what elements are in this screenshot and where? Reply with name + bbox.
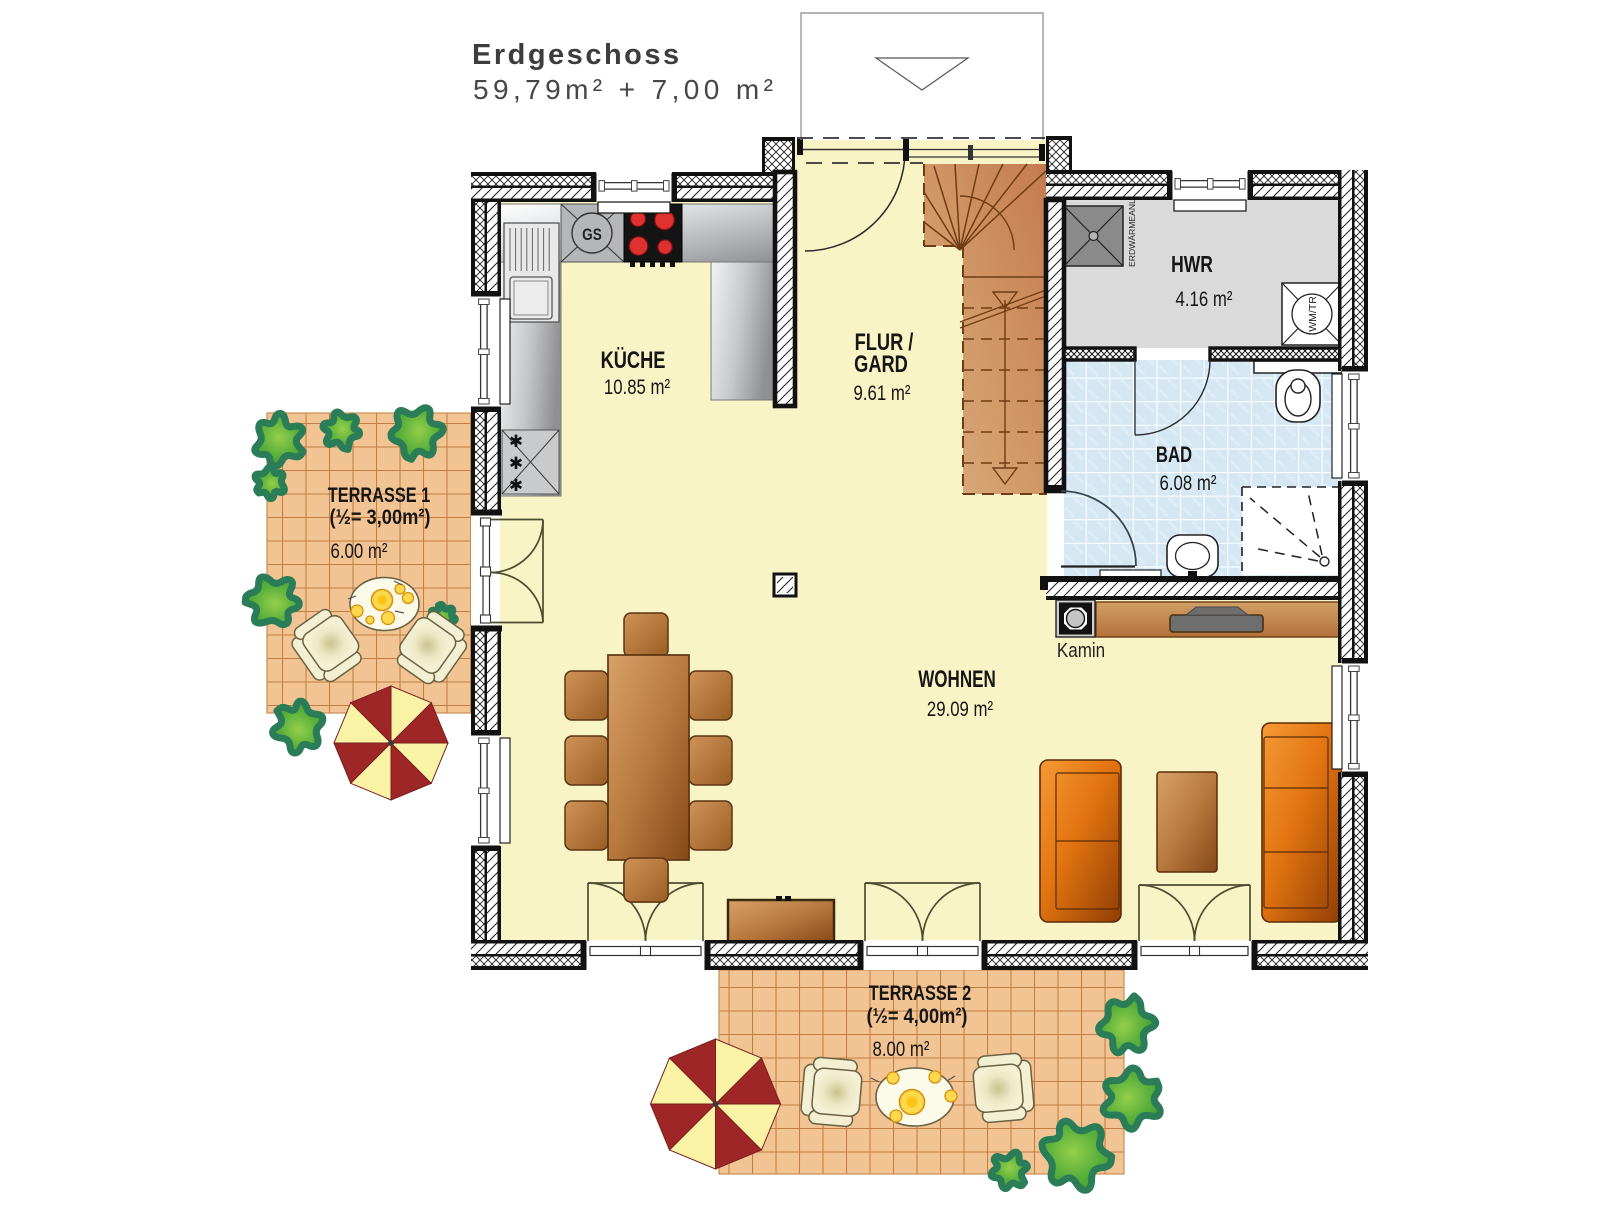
svg-text:GARD: GARD — [854, 351, 908, 378]
svg-text:8.00 m²: 8.00 m² — [873, 1038, 930, 1061]
svg-text:HWR: HWR — [1171, 253, 1213, 278]
svg-text:(½= 4,00m²): (½= 4,00m²) — [867, 1005, 968, 1029]
svg-text:(½= 3,00m²): (½= 3,00m²) — [330, 506, 431, 530]
svg-text:✱: ✱ — [509, 432, 523, 451]
svg-text:6.08 m²: 6.08 m² — [1160, 472, 1217, 495]
svg-text:Kamin: Kamin — [1057, 639, 1105, 662]
svg-text:TERRASSE 1: TERRASSE 1 — [328, 484, 431, 508]
svg-text:4.16 m²: 4.16 m² — [1176, 288, 1233, 311]
svg-text:✱: ✱ — [509, 476, 523, 495]
svg-text:✱: ✱ — [509, 454, 523, 473]
svg-text:BAD: BAD — [1156, 443, 1192, 468]
svg-text:Erdgeschoss: Erdgeschoss — [472, 39, 682, 71]
svg-text:WM/TR: WM/TR — [1307, 296, 1319, 332]
svg-text:ERDWÄRMEANL.: ERDWÄRMEANL. — [1127, 197, 1137, 267]
svg-text:WOHNEN: WOHNEN — [918, 666, 996, 693]
svg-text:GS: GS — [582, 226, 602, 245]
svg-text:TERRASSE 2: TERRASSE 2 — [869, 982, 972, 1006]
svg-text:KÜCHE: KÜCHE — [601, 345, 666, 373]
svg-text:6.00 m²: 6.00 m² — [331, 540, 388, 563]
svg-text:29.09 m²: 29.09 m² — [927, 698, 993, 721]
svg-text:9.61 m²: 9.61 m² — [854, 382, 911, 405]
svg-text:59,79m² + 7,00 m²: 59,79m² + 7,00 m² — [473, 74, 777, 105]
svg-text:10.85 m²: 10.85 m² — [604, 376, 670, 399]
